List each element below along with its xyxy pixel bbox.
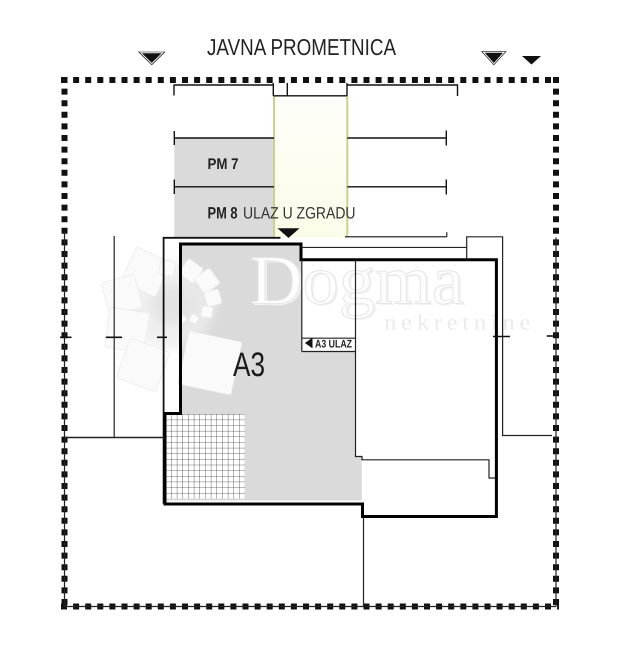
svg-text:PM 7: PM 7 [208, 156, 239, 173]
svg-text:nekretnine: nekretnine [384, 310, 535, 335]
svg-text:A3 ULAZ: A3 ULAZ [315, 339, 352, 351]
svg-text:JAVNA PROMETNICA: JAVNA PROMETNICA [207, 34, 397, 60]
svg-text:ULAZ U ZGRADU: ULAZ U ZGRADU [243, 205, 356, 223]
svg-text:Dogma: Dogma [250, 243, 464, 320]
svg-text:A3: A3 [233, 346, 265, 384]
svg-text:PM 8: PM 8 [208, 205, 238, 223]
